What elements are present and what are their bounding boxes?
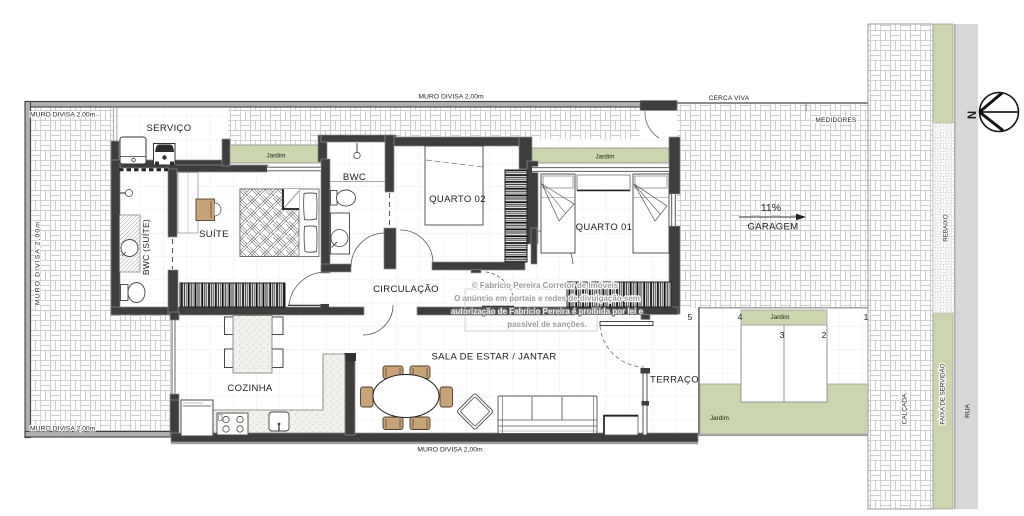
svg-text:Jardim: Jardim bbox=[710, 415, 729, 422]
svg-text:2: 2 bbox=[822, 330, 827, 340]
svg-text:© Fabrício Pereira Corretor de: © Fabrício Pereira Corretor de Imóveis bbox=[472, 281, 619, 290]
svg-text:COZINHA: COZINHA bbox=[227, 383, 273, 394]
svg-text:Jardim: Jardim bbox=[267, 153, 286, 160]
svg-text:QUARTO 01: QUARTO 01 bbox=[576, 222, 633, 233]
svg-text:N: N bbox=[967, 111, 979, 119]
svg-text:CALÇADA: CALÇADA bbox=[902, 393, 909, 424]
svg-text:CIRCULAÇÃO: CIRCULAÇÃO bbox=[373, 284, 439, 295]
svg-text:autorização de Fabrício Pereir: autorização de Fabrício Pereira é proibi… bbox=[451, 307, 644, 316]
svg-text:Jardim: Jardim bbox=[771, 314, 790, 321]
svg-text:BWC: BWC bbox=[343, 172, 366, 183]
svg-text:passível de sanções.: passível de sanções. bbox=[507, 320, 587, 329]
svg-text:TERRAÇO: TERRAÇO bbox=[650, 375, 699, 386]
svg-text:MURO DIVISA 2,00m: MURO DIVISA 2,00m bbox=[35, 221, 42, 305]
svg-text:REBAIXO: REBAIXO bbox=[943, 214, 950, 242]
svg-text:1: 1 bbox=[864, 312, 869, 322]
svg-text:SUÍTE: SUÍTE bbox=[199, 229, 229, 240]
svg-text:GARAGEM: GARAGEM bbox=[747, 222, 798, 233]
svg-text:MEDIDORES: MEDIDORES bbox=[815, 117, 857, 124]
svg-text:3: 3 bbox=[780, 330, 785, 340]
svg-text:4: 4 bbox=[738, 312, 743, 322]
svg-text:BWC (SUÍTE): BWC (SUÍTE) bbox=[141, 219, 151, 275]
svg-text:FAIXA DE SERVIDÃO: FAIXA DE SERVIDÃO bbox=[940, 363, 947, 424]
svg-text:MURO DIVISA 2,00m: MURO DIVISA 2,00m bbox=[417, 447, 483, 454]
svg-text:SERVIÇO: SERVIÇO bbox=[146, 123, 191, 134]
svg-text:5: 5 bbox=[688, 312, 693, 322]
svg-text:MURO DIVISA 2,00m: MURO DIVISA 2,00m bbox=[418, 94, 484, 101]
svg-text:Jardim: Jardim bbox=[596, 154, 615, 161]
svg-text:O anúncio em portais e redes d: O anúncio em portais e redes de divulgaç… bbox=[454, 294, 640, 303]
svg-text:RUA: RUA bbox=[965, 403, 972, 417]
svg-text:CERCA VIVA: CERCA VIVA bbox=[709, 95, 750, 102]
svg-text:MURO DIVISA 2,00m: MURO DIVISA 2,00m bbox=[30, 112, 96, 119]
svg-text:SALA DE ESTAR / JANTAR: SALA DE ESTAR / JANTAR bbox=[431, 352, 556, 363]
svg-text:QUARTO 02: QUARTO 02 bbox=[429, 194, 486, 205]
svg-text:MURO DIVISA 2,00m: MURO DIVISA 2,00m bbox=[30, 426, 96, 433]
svg-text:11%: 11% bbox=[761, 202, 781, 214]
